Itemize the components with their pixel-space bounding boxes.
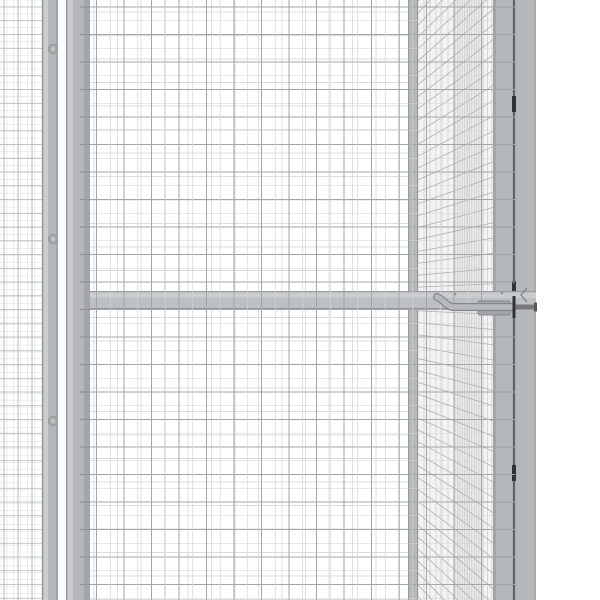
corner-post-highlight bbox=[44, 0, 48, 600]
bolt-center bbox=[51, 237, 54, 240]
hinge-mark bbox=[512, 96, 516, 112]
post-gap bbox=[58, 0, 66, 600]
bolt-center bbox=[51, 419, 54, 422]
latch-rod-cap bbox=[534, 303, 537, 312]
bolt-center bbox=[51, 47, 54, 50]
left-mesh-panel bbox=[0, 0, 42, 600]
rail-screw bbox=[501, 292, 504, 295]
product-photo bbox=[0, 0, 600, 600]
door-frame-post-highlight bbox=[68, 0, 73, 600]
hinge-mark bbox=[512, 465, 516, 481]
cage-scene bbox=[0, 0, 600, 600]
latch-slot bbox=[513, 296, 516, 318]
